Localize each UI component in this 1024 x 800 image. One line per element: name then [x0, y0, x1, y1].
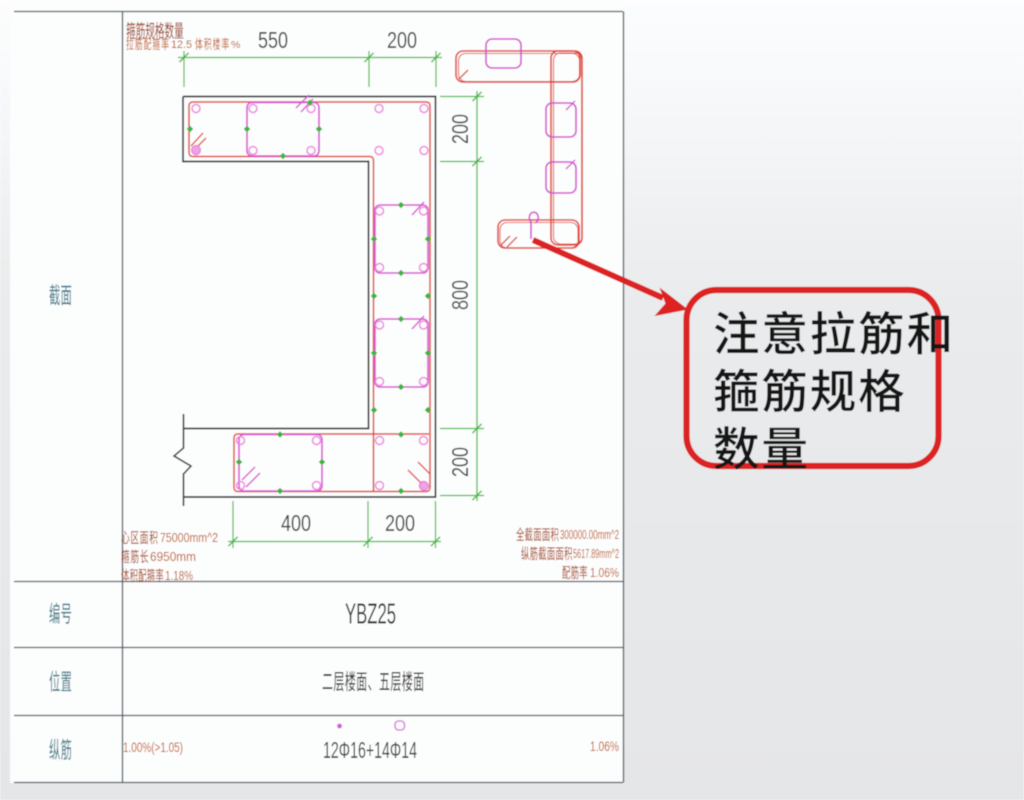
svg-text:200: 200 [447, 447, 473, 477]
svg-text:6950mm: 6950mm [150, 549, 196, 564]
svg-text:200: 200 [447, 114, 473, 144]
svg-text:12Φ16+14Φ14: 12Φ16+14Φ14 [323, 737, 417, 763]
svg-text:300000.00mm^2: 300000.00mm^2 [560, 527, 619, 542]
svg-text:75000mm^2: 75000mm^2 [160, 530, 218, 545]
svg-text:5617.89mm^2: 5617.89mm^2 [573, 546, 619, 561]
svg-text:YBZ25: YBZ25 [345, 599, 396, 631]
svg-text:800: 800 [447, 280, 473, 310]
svg-text:400: 400 [281, 510, 311, 536]
svg-text:1.06%: 1.06% [590, 565, 619, 580]
svg-text:200: 200 [385, 510, 415, 536]
svg-text:%: % [231, 39, 240, 51]
svg-text:200: 200 [387, 27, 417, 53]
svg-text:12.5: 12.5 [171, 39, 192, 51]
svg-text:1.18%: 1.18% [165, 568, 193, 583]
svg-text:550: 550 [258, 27, 288, 53]
svg-text:1.00%(>1.05): 1.00%(>1.05) [123, 740, 183, 755]
svg-text:1.06%: 1.06% [590, 739, 619, 754]
